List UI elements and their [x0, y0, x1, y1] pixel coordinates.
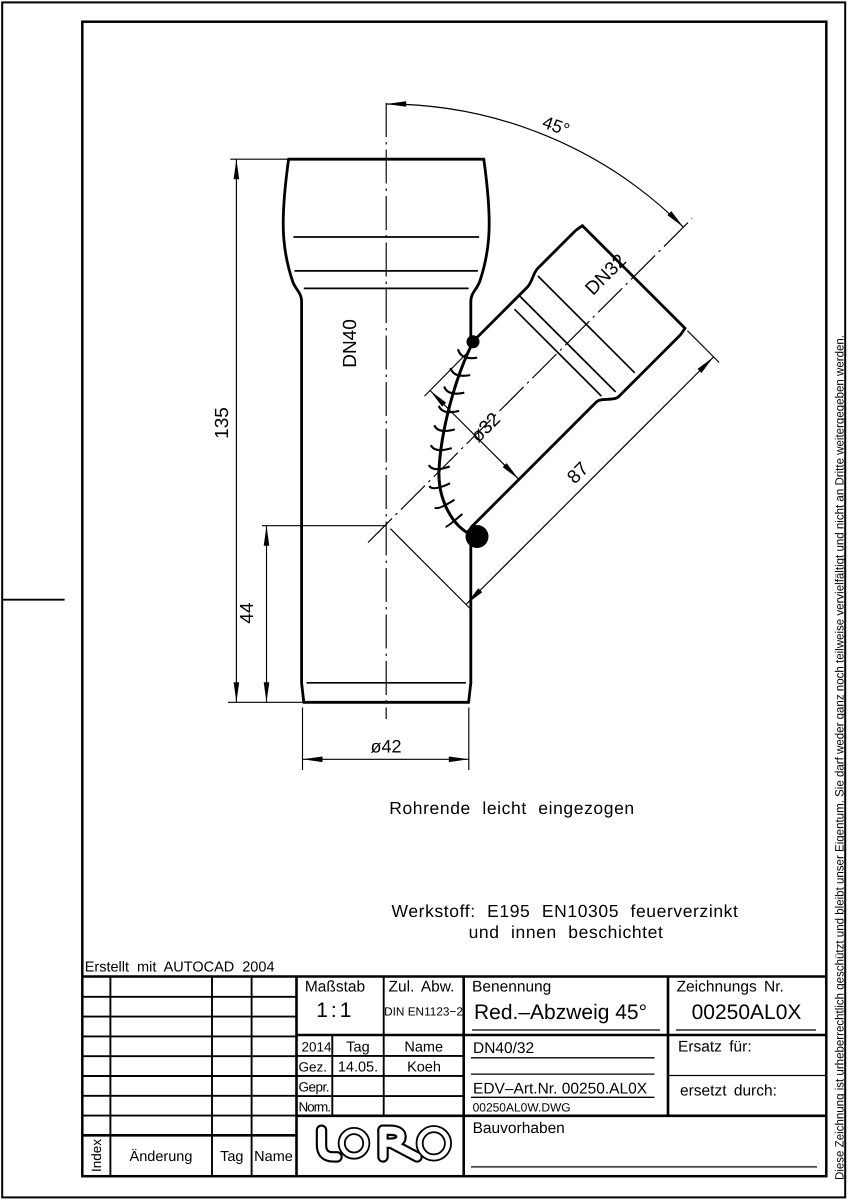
svg-text:Name: Name	[404, 1040, 443, 1056]
svg-text:ø42: ø42	[370, 737, 401, 757]
svg-text:2014: 2014	[302, 1040, 333, 1055]
svg-text:Zul. Abw.: Zul. Abw.	[389, 979, 455, 996]
svg-text:Gepr.: Gepr.	[299, 1080, 330, 1095]
svg-text:DIN EN1123−2: DIN EN1123−2	[384, 1005, 463, 1019]
svg-text:Zeichnungs Nr.: Zeichnungs Nr.	[677, 979, 784, 996]
svg-text:Rohrende leicht eingezogen: Rohrende leicht eingezogen	[389, 798, 635, 818]
svg-text:00250AL0X: 00250AL0X	[692, 1001, 802, 1024]
svg-text:Benennung: Benennung	[472, 979, 551, 996]
svg-text:Änderung: Änderung	[130, 1148, 193, 1165]
svg-text:Bauvorhaben: Bauvorhaben	[473, 1120, 565, 1137]
svg-text:und innen beschichtet: und innen beschichtet	[469, 922, 664, 942]
svg-text:Red.–Abzweig 45°: Red.–Abzweig 45°	[474, 1001, 647, 1024]
svg-text:Norm.: Norm.	[299, 1100, 332, 1115]
svg-text:14.05.: 14.05.	[338, 1060, 378, 1076]
svg-text:Koeh: Koeh	[407, 1060, 441, 1076]
svg-text:1:1: 1:1	[316, 999, 354, 1022]
svg-text:Index: Index	[89, 1139, 104, 1172]
svg-text:Erstellt mit AUTOCAD 2004: Erstellt mit AUTOCAD 2004	[85, 960, 275, 976]
svg-text:Ersatz für:: Ersatz für:	[678, 1039, 752, 1056]
svg-text:Werkstoff: E195 EN10305 feuerv: Werkstoff: E195 EN10305 feuerverzinkt	[392, 901, 739, 921]
svg-text:135: 135	[212, 407, 233, 439]
svg-text:Diese Zeichnung ist urheberrec: Diese Zeichnung ist urheberrechtlich ges…	[833, 335, 847, 1180]
svg-text:Maßstab: Maßstab	[305, 979, 365, 996]
svg-text:EDV–Art.Nr. 00250.AL0X: EDV–Art.Nr. 00250.AL0X	[473, 1081, 648, 1098]
svg-text:Tag: Tag	[346, 1040, 369, 1056]
svg-text:Tag: Tag	[220, 1149, 243, 1165]
svg-text:Gez.: Gez.	[299, 1060, 328, 1075]
svg-text:44: 44	[237, 602, 258, 624]
svg-text:ersetzt durch:: ersetzt durch:	[680, 1083, 777, 1100]
svg-text:DN40/32: DN40/32	[473, 1040, 534, 1057]
svg-text:Name: Name	[254, 1149, 293, 1165]
svg-text:DN40: DN40	[340, 319, 361, 368]
svg-text:00250AL0W.DWG: 00250AL0W.DWG	[473, 1101, 571, 1115]
